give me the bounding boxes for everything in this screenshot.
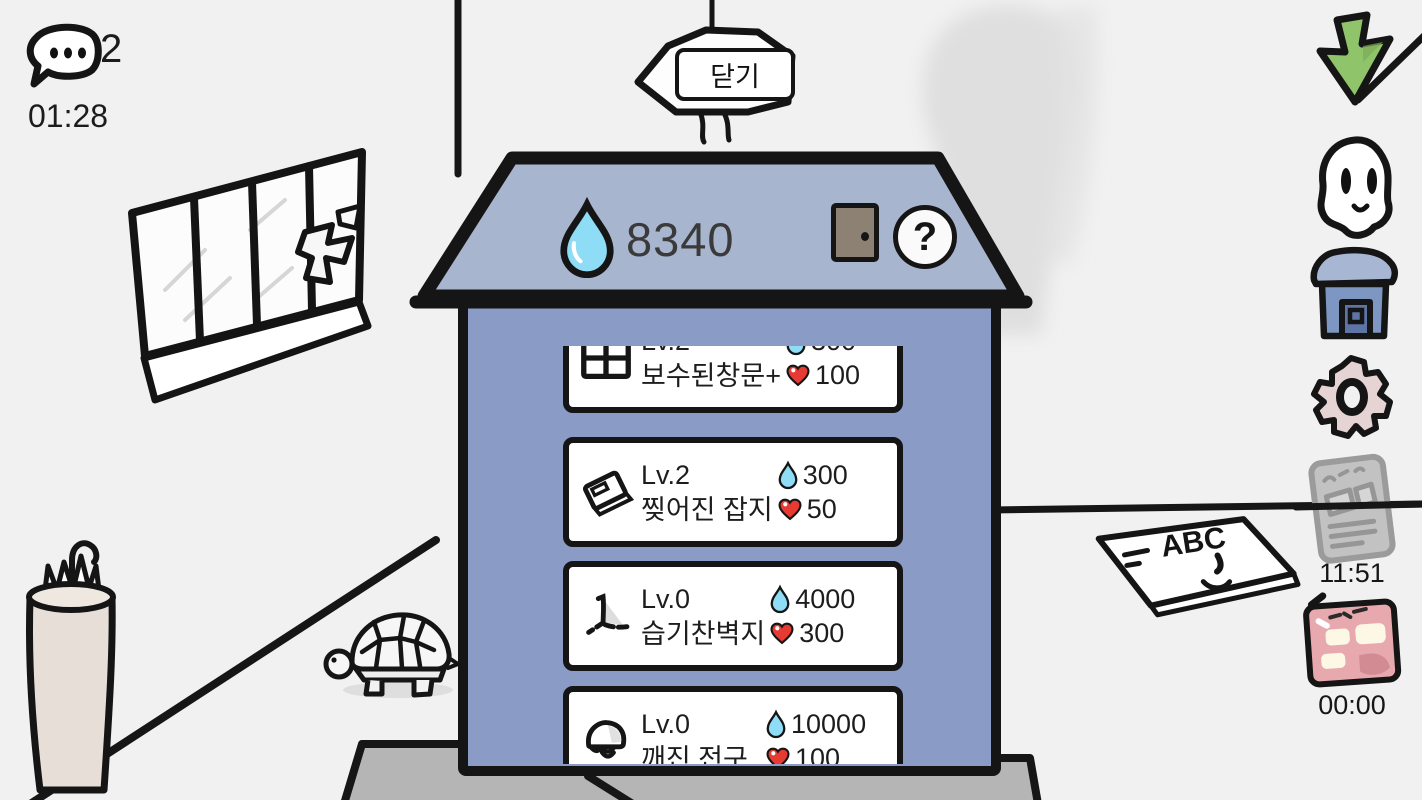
heart-cost: 100	[785, 359, 889, 391]
calendar-icon[interactable]	[1300, 592, 1404, 690]
door-button[interactable]	[831, 203, 879, 262]
chat-count: 2	[100, 27, 122, 72]
close-button[interactable]: 닫기	[675, 48, 795, 101]
wallpaper-icon	[575, 587, 637, 645]
upgrade-card-bulb[interactable]: Lv.0 깨진 전구 10000 100	[563, 686, 903, 764]
green-arrow-icon[interactable]	[1303, 8, 1403, 108]
water-balance-icon	[556, 196, 618, 280]
water-cost: 300	[777, 459, 889, 491]
water-drop-icon	[765, 710, 787, 738]
upgrade-card-magazine[interactable]: Lv.2 찢어진 잡지 300 50	[563, 437, 903, 547]
water-cost: 4000	[769, 583, 889, 615]
bulb-icon	[575, 712, 637, 764]
item-name: 보수된창문+	[641, 359, 781, 393]
heart-icon	[769, 622, 795, 645]
water-drop-icon	[785, 346, 807, 355]
heart-icon	[785, 364, 811, 387]
heart-icon	[777, 498, 803, 521]
item-level: Lv.2	[641, 458, 773, 492]
water-cost: 300	[785, 346, 889, 357]
item-name: 습기찬벽지	[641, 617, 765, 651]
turtle	[326, 615, 458, 698]
smoke	[923, 5, 1099, 335]
chat-bubble-icon[interactable]	[20, 18, 104, 102]
heart-cost: 100	[765, 742, 889, 764]
heart-cost: 50	[777, 493, 889, 525]
upgrade-list[interactable]: Lv.2 보수된창문+ 300 100	[471, 346, 988, 764]
item-name: 깨진 전구	[641, 742, 761, 765]
heart-cost: 300	[769, 617, 889, 649]
window-icon	[575, 346, 637, 387]
news-timer: 11:51	[1312, 558, 1392, 589]
game-stage: ABC Lv.2 보수된창문+ 300	[0, 0, 1422, 800]
calendar-timer: 00:00	[1312, 690, 1392, 721]
help-button[interactable]: ?	[893, 205, 957, 269]
item-level: Lv.2	[641, 346, 781, 358]
heart-icon	[765, 747, 791, 765]
gear-icon[interactable]	[1306, 350, 1398, 446]
house-icon[interactable]	[1306, 240, 1400, 342]
water-cost: 10000	[765, 708, 889, 740]
chat-timer: 01:28	[28, 98, 108, 135]
magazine-icon	[575, 463, 637, 521]
item-level: Lv.0	[641, 707, 761, 741]
window	[132, 152, 368, 400]
ghost-icon[interactable]	[1310, 134, 1400, 240]
item-name: 찢어진 잡지	[641, 493, 773, 527]
water-drop-icon	[777, 461, 799, 489]
news-icon[interactable]	[1294, 450, 1406, 568]
water-balance: 8340	[626, 212, 735, 267]
item-level: Lv.0	[641, 582, 765, 616]
floor-magazine: ABC	[1088, 497, 1306, 636]
umbrella-stand	[29, 543, 113, 790]
upgrade-card-wallpaper[interactable]: Lv.0 습기찬벽지 4000 300	[563, 561, 903, 671]
water-drop-icon	[769, 585, 791, 613]
upgrade-card-window[interactable]: Lv.2 보수된창문+ 300 100	[563, 346, 903, 413]
